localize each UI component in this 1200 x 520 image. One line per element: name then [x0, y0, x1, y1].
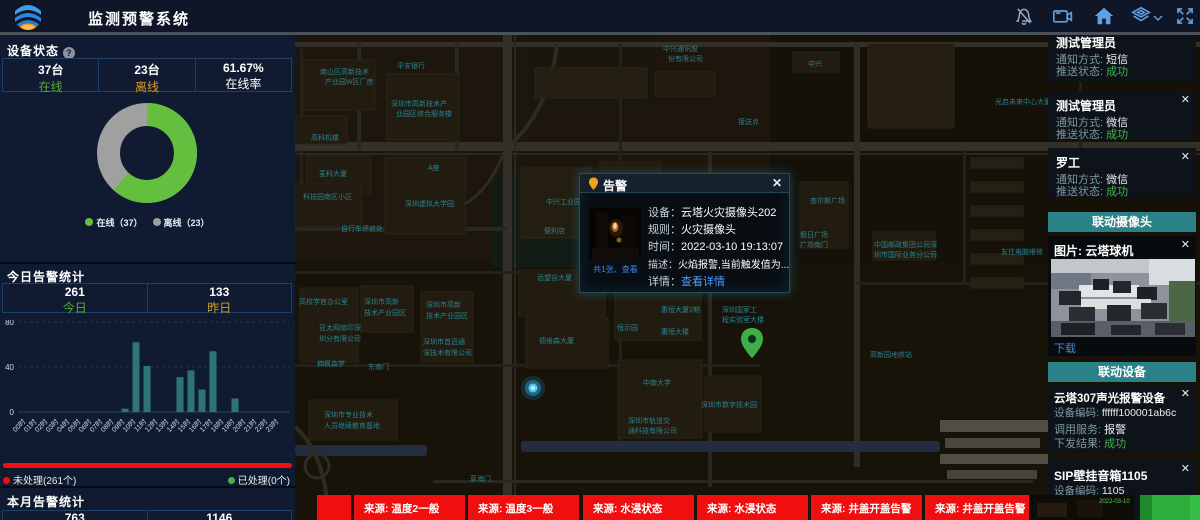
- svg-text:德维森大厦: 德维森大厦: [539, 336, 574, 345]
- svg-text:40: 40: [5, 363, 14, 372]
- svg-text:人员继续教育基地: 人员继续教育基地: [324, 421, 380, 430]
- svg-text:东南门: 东南门: [368, 362, 389, 371]
- svg-text:深圳市轨道交: 深圳市轨道交: [628, 416, 670, 425]
- svg-text:草海门: 草海门: [470, 474, 491, 483]
- svg-text:中兴工业园: 中兴工业园: [546, 197, 581, 206]
- svg-text:楠枫森梦: 楠枫森梦: [317, 359, 345, 368]
- svg-text:友住电脑维修: 友住电脑维修: [1001, 247, 1043, 256]
- svg-text:自行车停放处: 自行车停放处: [341, 224, 383, 233]
- svg-text:南山区高新技术: 南山区高新技术: [320, 67, 369, 76]
- svg-text:光启未来中心大厦: 光启未来中心大厦: [995, 97, 1051, 106]
- svg-text:中南大学: 中南大学: [643, 378, 671, 387]
- svg-text:圳分有限公司: 圳分有限公司: [319, 334, 361, 343]
- svg-text:2022-03-10: 2022-03-10: [1099, 499, 1130, 505]
- svg-text:深技术有限公司: 深技术有限公司: [423, 348, 472, 357]
- svg-text:便利店: 便利店: [544, 226, 565, 235]
- svg-text:圳市国际业务分公司: 圳市国际业务分公司: [874, 250, 937, 259]
- svg-text:程实验室大楼: 程实验室大楼: [722, 315, 764, 324]
- svg-text:假日广场: 假日广场: [800, 230, 828, 239]
- svg-text:高校学官办公室: 高校学官办公室: [299, 297, 348, 306]
- svg-text:惠恒大楼: 惠恒大楼: [661, 327, 689, 336]
- svg-text:份有限公司: 份有限公司: [668, 54, 703, 63]
- svg-text:技术产业园区: 技术产业园区: [426, 311, 468, 320]
- svg-text:深圳市高新: 深圳市高新: [426, 300, 461, 309]
- svg-text:0: 0: [10, 408, 15, 417]
- svg-text:业园区综合服务楼: 业园区综合服务楼: [396, 109, 452, 118]
- svg-text:麦科大厦: 麦科大厦: [319, 169, 347, 178]
- svg-text:亚太网络印深: 亚太网络印深: [319, 323, 361, 332]
- svg-text:产业园W区厂房: 产业园W区厂房: [325, 77, 374, 86]
- svg-text:深圳市数字技术园: 深圳市数字技术园: [701, 400, 757, 409]
- svg-text:深圳虚拟大学园: 深圳虚拟大学园: [405, 199, 454, 208]
- svg-text:A座: A座: [428, 163, 440, 172]
- svg-text:深圳市高新技术产: 深圳市高新技术产: [391, 99, 447, 108]
- svg-text:深圳国家工: 深圳国家工: [722, 305, 757, 314]
- svg-text:深圳市专业技术: 深圳市专业技术: [324, 410, 373, 419]
- svg-text:中国邮政集团公司深: 中国邮政集团公司深: [874, 240, 937, 249]
- svg-text:技术产业园区: 技术产业园区: [364, 308, 406, 317]
- svg-text:80: 80: [5, 320, 14, 327]
- svg-text:科技园南区小区: 科技园南区小区: [303, 192, 352, 201]
- svg-text:深圳市高新: 深圳市高新: [364, 297, 399, 306]
- svg-text:高科机楼: 高科机楼: [311, 133, 339, 142]
- svg-text:平安银行: 平安银行: [397, 61, 425, 70]
- svg-text:高新园地铁站: 高新园地铁站: [870, 350, 912, 359]
- svg-text:中兴通讯股: 中兴通讯股: [663, 44, 698, 53]
- svg-text:中兴: 中兴: [808, 59, 822, 68]
- svg-text:深圳市首迈通: 深圳市首迈通: [423, 337, 465, 346]
- svg-text:接送点: 接送点: [738, 117, 759, 126]
- svg-text:通科技有限公司: 通科技有限公司: [628, 426, 677, 435]
- svg-text:恒示园: 恒示园: [617, 323, 638, 332]
- svg-text:惠恒大厦2期: 惠恒大厦2期: [661, 305, 700, 314]
- svg-text:广场南门: 广场南门: [800, 240, 828, 249]
- svg-text:远望谷大厦: 远望谷大厦: [537, 273, 572, 282]
- svg-text:查尔斯广场: 查尔斯广场: [810, 196, 845, 205]
